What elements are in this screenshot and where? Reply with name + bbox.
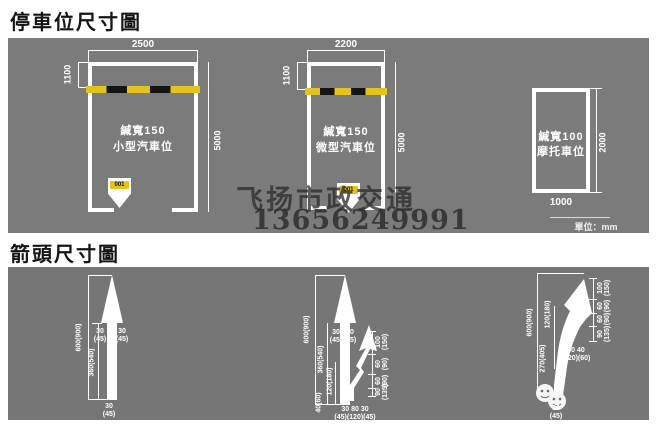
space2-length-label: 5000 bbox=[398, 126, 407, 160]
space1-width-label: 2500 bbox=[88, 39, 198, 50]
unit-label: 單位：mm bbox=[556, 220, 636, 233]
a2-base-offset-label: 40(60) bbox=[315, 387, 324, 419]
space1-bottom-stub-right bbox=[172, 208, 198, 212]
a1-headbase-tick bbox=[92, 323, 102, 324]
space1-type-text: 小型汽車位 bbox=[84, 138, 202, 154]
space2-type-text: 微型汽車位 bbox=[299, 139, 393, 155]
space1-entry-label: 1100 bbox=[64, 60, 73, 90]
space1-width-dim-line bbox=[88, 50, 198, 51]
diagram-canvas: 停車位尺寸圖 2500 1100 緘寬150 小型汽車位 5000 001 bbox=[0, 0, 657, 428]
a3-total-label: 600(900) bbox=[526, 301, 535, 345]
a1-tail-label: 360(540) bbox=[88, 341, 97, 385]
space3-length-tick-top bbox=[590, 88, 602, 89]
space2-width-dim-line bbox=[307, 50, 385, 51]
space3-type-text: 摩托車位 bbox=[524, 143, 598, 159]
a1-total-label: 600(900) bbox=[75, 316, 84, 360]
space1-entry-tick-top bbox=[78, 62, 88, 63]
space1-width-ext-left bbox=[88, 50, 89, 62]
a1-top-ext-line bbox=[88, 275, 112, 276]
a2-base-row-label: 30 80 30 (45)(120)(45) bbox=[326, 406, 384, 422]
space3-length-label: 2000 bbox=[599, 126, 608, 160]
a3-inner-dim-line bbox=[554, 306, 555, 369]
a3-right-seg-4-label: 90 (135) bbox=[598, 322, 610, 346]
space1-entry-marker: 001 bbox=[108, 178, 131, 208]
space2-line-width-text: 緘寬150 bbox=[303, 123, 389, 139]
a2-right-seg-4-label: 90 (135) bbox=[376, 380, 388, 404]
a2-head-left-label: 30 (45) bbox=[329, 329, 343, 345]
a1-head-right-label: 30 (45) bbox=[114, 328, 130, 344]
parking-section-title: 停車位尺寸圖 bbox=[10, 6, 142, 35]
a2-branch-dim-line bbox=[335, 362, 336, 405]
a2-top-ext-line bbox=[315, 275, 345, 276]
unit-separator-line bbox=[550, 217, 610, 218]
a2-right-tick-1 bbox=[368, 331, 376, 332]
a2-head-right-label: 30 (45) bbox=[343, 329, 357, 345]
space1-length-label: 5000 bbox=[214, 124, 223, 158]
a2-tail-label: 360(540) bbox=[317, 338, 326, 382]
space1-length-dim-line bbox=[208, 62, 209, 212]
space1-entry-dim-line bbox=[78, 62, 79, 88]
a3-lower-label: 270(405) bbox=[539, 339, 548, 379]
a3-base-label: 30 (45) bbox=[547, 405, 565, 421]
a3-upper-label: 120(180) bbox=[544, 295, 553, 335]
space1-yellow-black-stripe bbox=[86, 86, 200, 93]
a2-branch-label: 120(180) bbox=[326, 360, 335, 404]
space2-yellow-black-stripe bbox=[305, 88, 387, 95]
space3-line-width-text: 緘寬100 bbox=[526, 128, 596, 144]
space3-width-label: 1000 bbox=[532, 197, 590, 208]
space1-width-ext-right bbox=[197, 50, 198, 62]
space1-marker-band: 001 bbox=[110, 181, 129, 189]
a3-right-dim-line bbox=[593, 278, 594, 342]
space2-entry-tick-top bbox=[297, 62, 307, 63]
space2-entry-dim-line bbox=[297, 62, 298, 90]
space2-entry-label: 1100 bbox=[283, 61, 292, 91]
a3-mid-row-label: 80 40 (120)(60) bbox=[558, 347, 594, 363]
space2-width-label: 2200 bbox=[307, 39, 385, 50]
a3-top-ext-line bbox=[537, 273, 584, 274]
space1-line-width-text: 緘寬150 bbox=[88, 122, 198, 138]
watermark-phone-text: 13656249991 bbox=[252, 205, 470, 236]
a1-base-label: 30 (45) bbox=[100, 403, 118, 419]
space3-length-tick-bottom bbox=[590, 192, 602, 193]
space2-width-ext-left bbox=[307, 50, 308, 62]
a2-right-seg-1-label: 100 (150) bbox=[376, 330, 388, 354]
arrow-section-title: 箭頭尺寸圖 bbox=[10, 238, 120, 267]
arrow-panel: 600(900) 360(540) 30 (45) 30 (45) 30 (45… bbox=[8, 267, 649, 420]
a2-right-tick-2 bbox=[368, 354, 376, 355]
a1-head-left-label: 30 (45) bbox=[93, 328, 107, 344]
a2-total-label: 600(900) bbox=[303, 308, 312, 352]
space1-bottom-stub-left bbox=[88, 208, 114, 212]
right-turn-arrow-shape bbox=[554, 279, 592, 403]
space2-width-ext-right bbox=[384, 50, 385, 62]
